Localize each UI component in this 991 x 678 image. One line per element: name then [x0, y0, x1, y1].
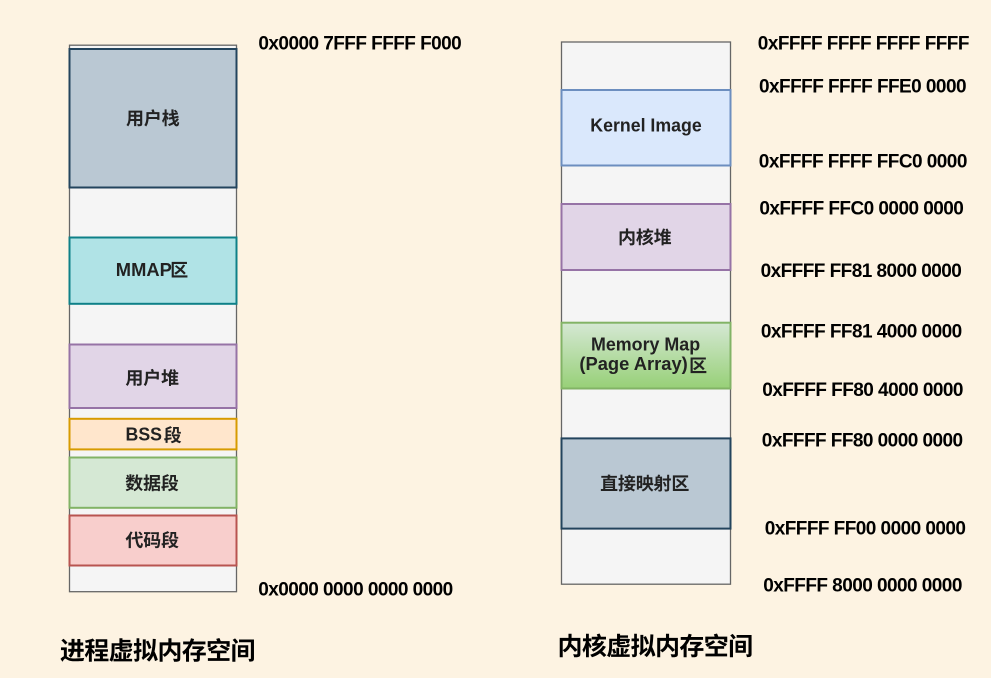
svg-text:Kernel Image: Kernel Image [590, 116, 701, 136]
svg-text:0xFFFF 8000 0000 0000: 0xFFFF 8000 0000 0000 [763, 576, 962, 597]
svg-text:0xFFFF FFFF FFFF FFFF: 0xFFFF FFFF FFFF FFFF [758, 34, 969, 55]
svg-text:0xFFFF FFFF FFC0 0000: 0xFFFF FFFF FFC0 0000 [759, 151, 967, 172]
svg-text:0xFFFF FFFF FFE0 0000: 0xFFFF FFFF FFE0 0000 [759, 77, 966, 98]
svg-text:BSS: BSS [126, 425, 163, 445]
svg-text:0xFFFF FF80 0000 0000: 0xFFFF FF80 0000 0000 [762, 431, 963, 452]
svg-text:0xFFFF FF00 0000 0000: 0xFFFF FF00 0000 0000 [765, 519, 966, 540]
svg-text:MMAP: MMAP [116, 260, 172, 280]
svg-text:0xFFFF FF81 8000 0000: 0xFFFF FF81 8000 0000 [761, 261, 962, 282]
svg-text:0xFFFF FFC0 0000 0000: 0xFFFF FFC0 0000 0000 [759, 198, 963, 219]
svg-text:(Page Array): (Page Array) [579, 354, 687, 374]
svg-text:0x0000 7FFF FFFF F000: 0x0000 7FFF FFFF F000 [258, 34, 461, 55]
svg-text:0xFFFF FF81 4000 0000: 0xFFFF FF81 4000 0000 [761, 321, 962, 342]
svg-text:0x0000 0000 0000 0000: 0x0000 0000 0000 0000 [258, 579, 453, 600]
svg-text:Memory Map: Memory Map [591, 335, 700, 355]
svg-text:0xFFFF FF80 4000 0000: 0xFFFF FF80 4000 0000 [762, 380, 963, 401]
